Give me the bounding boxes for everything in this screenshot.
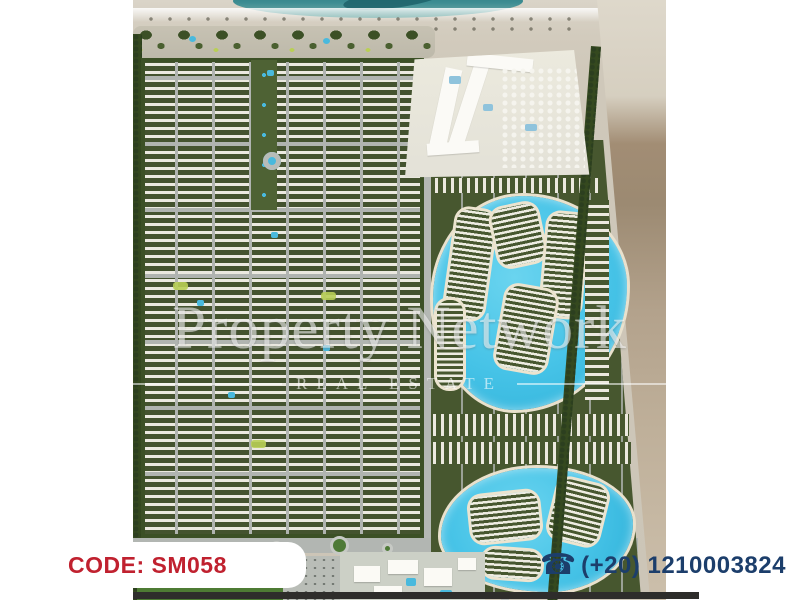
amenity-building (388, 560, 418, 574)
listing-code-badge: CODE: SM058 (0, 542, 306, 588)
promenade-pool (189, 36, 196, 42)
beach-promenade (133, 26, 435, 58)
house-row (433, 414, 629, 436)
park-patch (173, 282, 188, 290)
house-row (435, 178, 603, 193)
amenity-building (424, 568, 452, 586)
phone-number-text: (+20) 1210003824 (581, 552, 786, 580)
hotel-building (427, 140, 480, 156)
central-plaza (263, 152, 281, 170)
amenity-building (458, 558, 476, 570)
lagoon-island (482, 548, 542, 580)
watermark-title: Property Network (133, 294, 666, 364)
listing-code-text: CODE: SM058 (68, 552, 227, 579)
watermark-rule-right (517, 383, 666, 385)
hotel-chalet-rows (501, 68, 585, 168)
amenity-building (354, 566, 380, 582)
watermark-rule-left (133, 383, 282, 385)
pool (267, 70, 274, 76)
photo-bottom-border (133, 592, 699, 599)
hotel-zone (405, 46, 595, 180)
club-pool (406, 578, 416, 586)
contact-phone: ☎ (+20) 1210003824 (540, 551, 786, 580)
telephone-icon: ☎ (540, 551, 576, 580)
hotel-pool (525, 124, 537, 131)
hotel-pool (483, 104, 493, 111)
central-green-spine (251, 60, 277, 210)
park-patch (251, 440, 266, 448)
pool (271, 232, 278, 238)
hotel-pool (449, 76, 461, 84)
watermark-subtitle: REAL ESTATE (282, 374, 517, 394)
promenade-pool (323, 38, 330, 44)
listing-image: Property Network REAL ESTATE CODE: SM058… (0, 0, 800, 600)
lagoon-island (469, 491, 541, 544)
house-row (433, 442, 631, 464)
watermark-subtitle-row: REAL ESTATE (133, 374, 666, 394)
